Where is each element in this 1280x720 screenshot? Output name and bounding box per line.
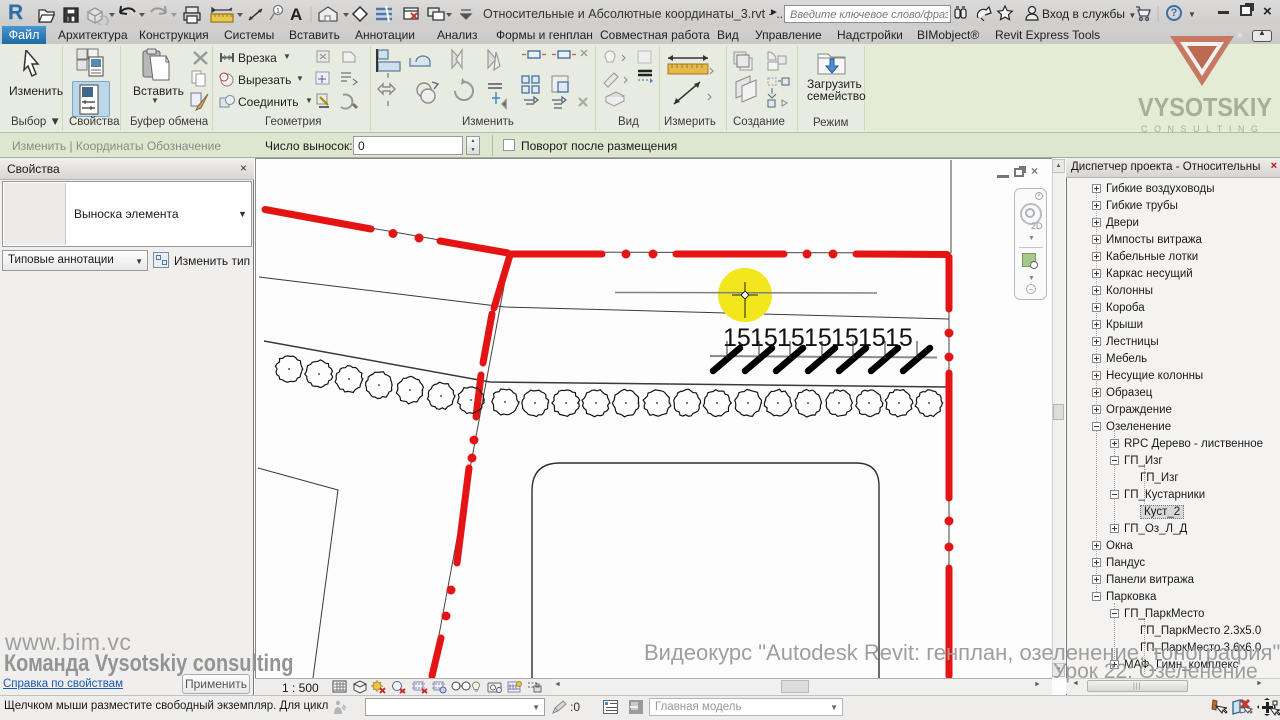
svg-text:15: 15	[804, 324, 832, 352]
svg-text:A: A	[290, 5, 302, 24]
svg-text:1: 1	[276, 8, 280, 15]
